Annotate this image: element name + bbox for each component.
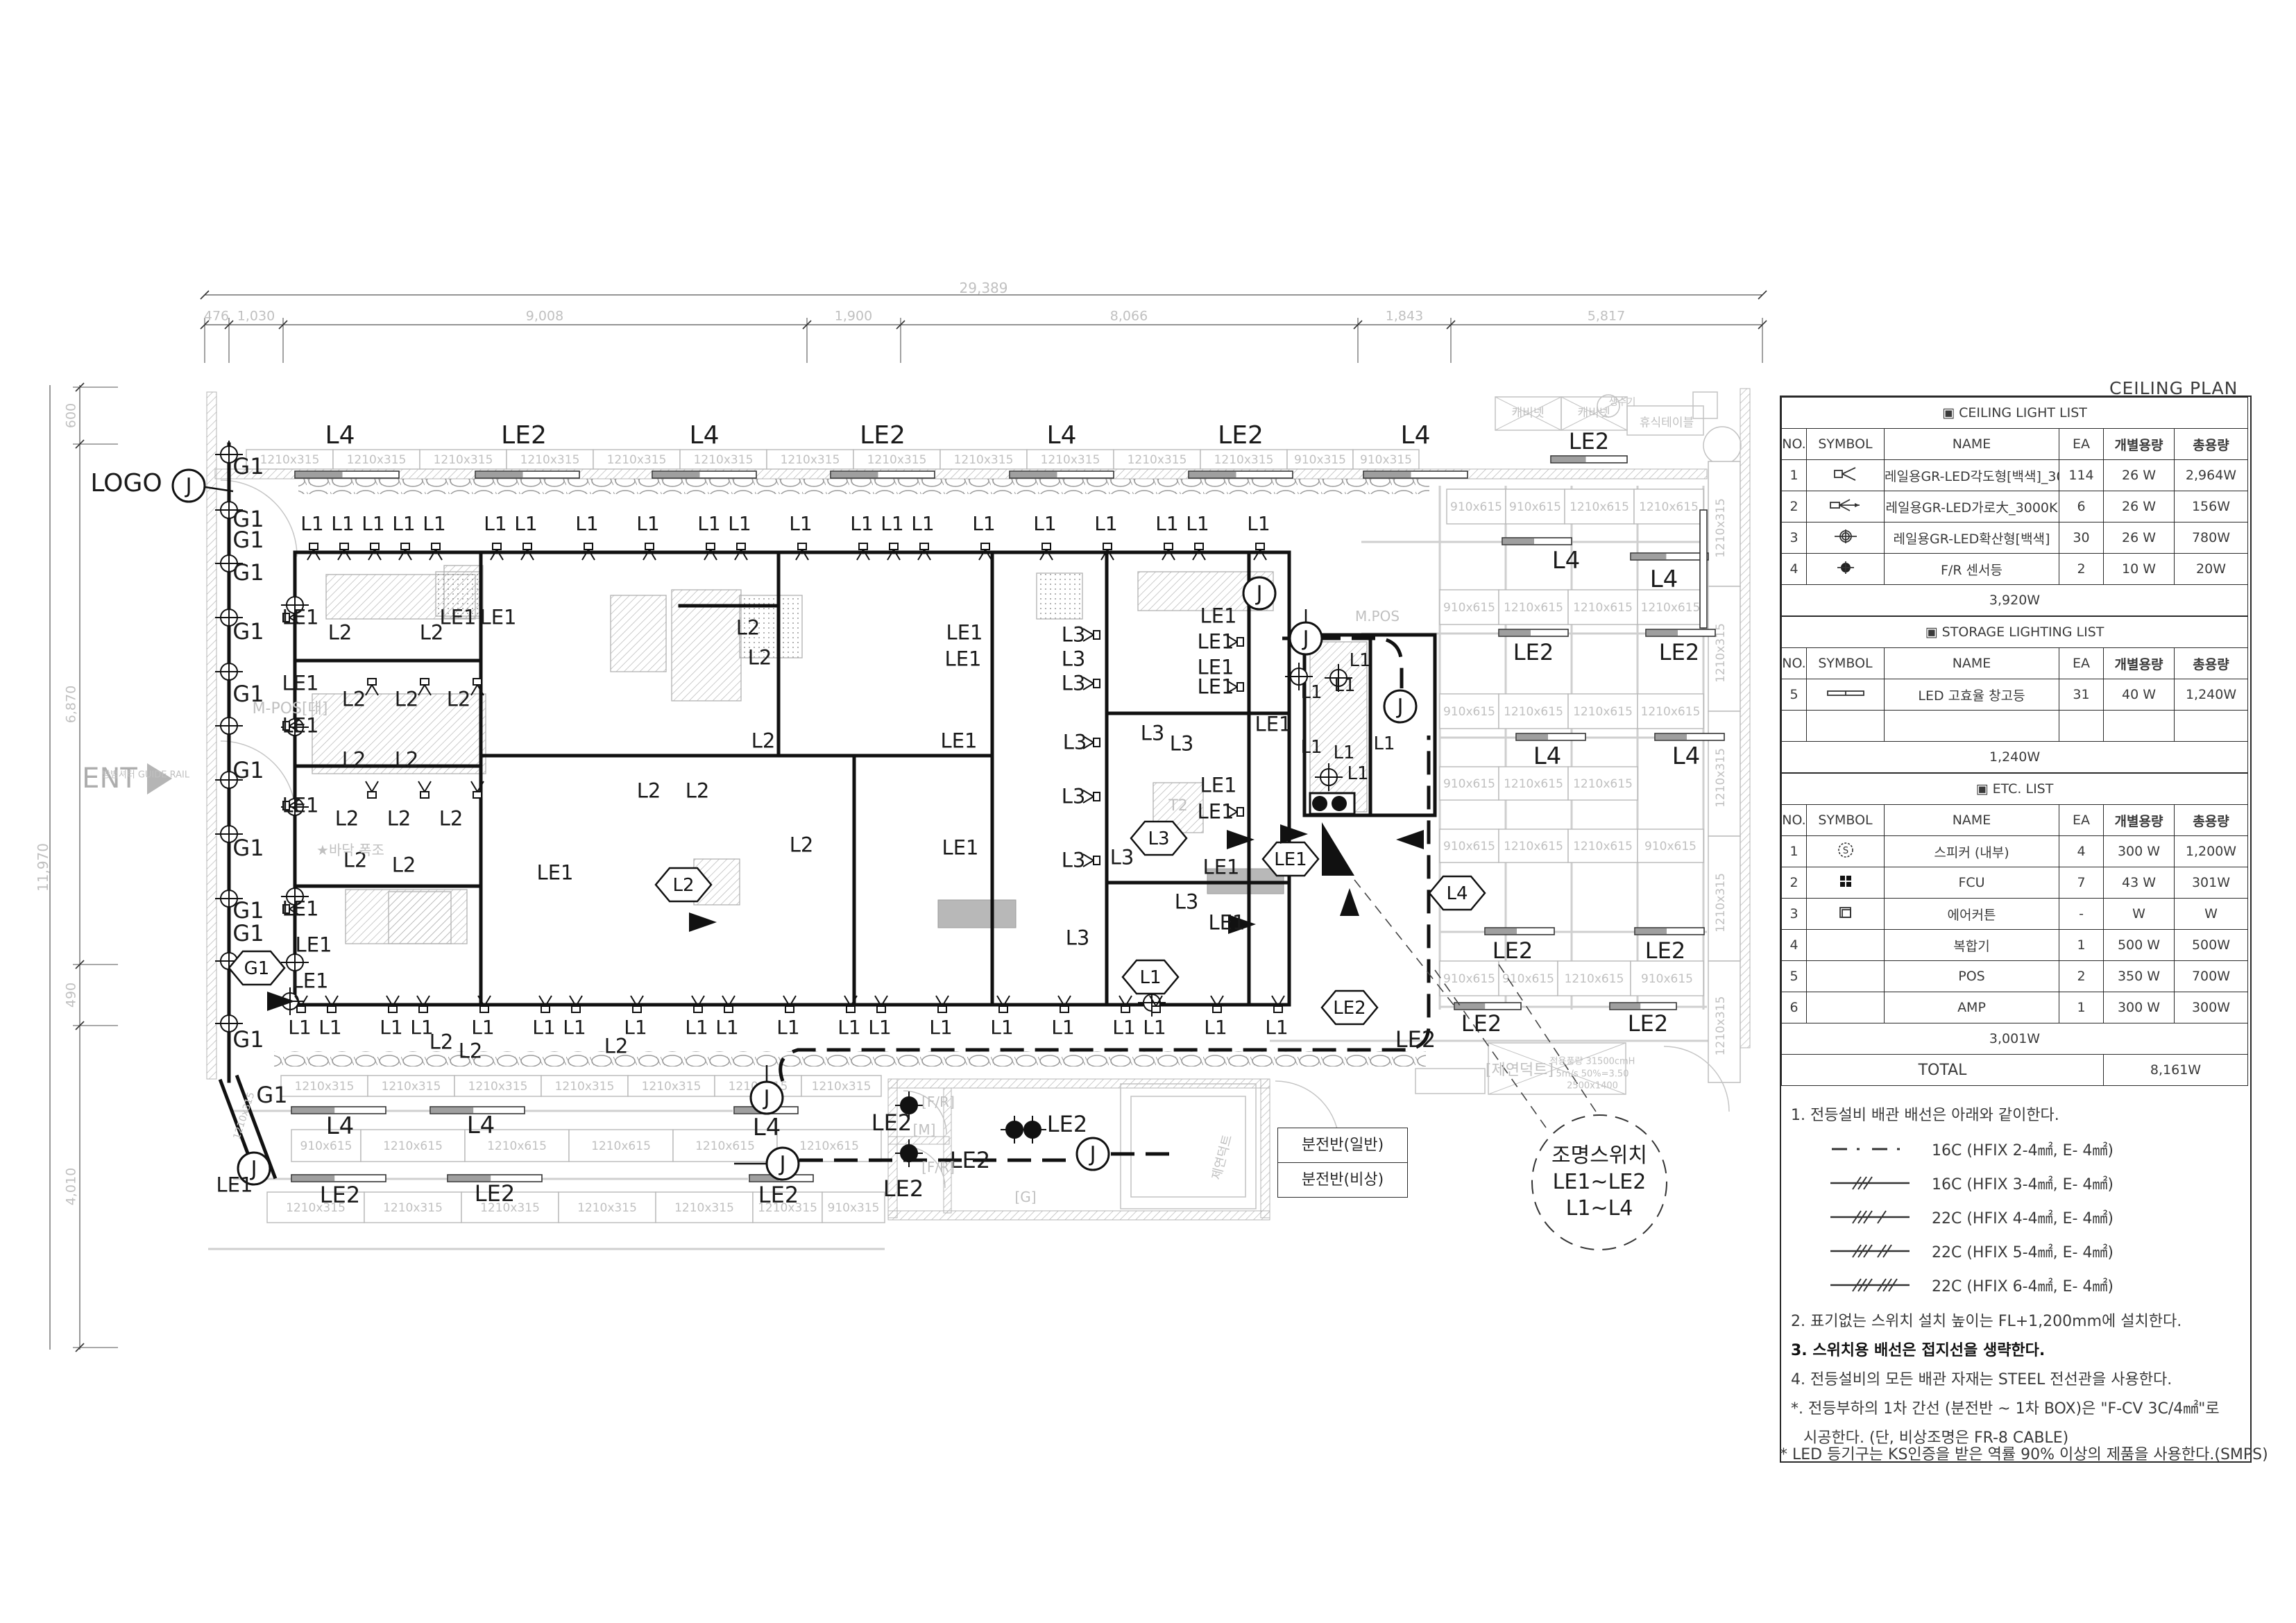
wall-hatch — [1261, 1079, 1270, 1218]
plan-label: L2 — [342, 690, 366, 710]
shelf-size-label: 1210x615 — [591, 1139, 651, 1153]
plan-label: G1 — [232, 455, 264, 477]
plan-label: LE2 — [883, 1178, 924, 1200]
panel-label: 분전반(비상) — [1278, 1163, 1407, 1197]
circuit-label-l1: L1 — [532, 1018, 555, 1037]
table-row: 5POS2350 W700W — [1782, 961, 2248, 992]
table-row: 3에어커튼-WW — [1782, 899, 2248, 930]
table-header: NO. — [1782, 648, 1807, 679]
plan-label: LE2 — [475, 1182, 515, 1205]
junction-box: J — [751, 1082, 783, 1114]
plan-label: LE1 — [282, 674, 319, 694]
plan-label: L2 — [751, 731, 776, 751]
circuit-label-l1: L1 — [331, 514, 354, 534]
table-header: 개별용량 — [2104, 429, 2175, 460]
circuit-label-l1: L1 — [380, 1018, 402, 1037]
dim-value: 9,008 — [526, 310, 563, 323]
shelf-size-label: 1210x315 — [468, 1080, 528, 1094]
plan-label: LE2 — [1569, 430, 1609, 452]
plan-label: L4 — [326, 1114, 355, 1138]
dim-value: 1,030 — [237, 310, 275, 323]
plan-label: G1 — [232, 529, 264, 551]
shelf-size-label: 1210x615 — [1573, 840, 1633, 853]
rail-spot-icon — [1083, 629, 1100, 641]
plan-label: LE2 — [1513, 641, 1554, 663]
table-header: SYMBOL — [1807, 648, 1885, 679]
shelf-size-label: 1210x315 — [520, 453, 580, 467]
table-row: 4복합기1500 W500W — [1782, 930, 2248, 961]
circuit-label-l1: L1 — [1204, 1018, 1227, 1037]
light-list-panel: ▣ CEILING LIGHT LISTNO.SYMBOLNAMEEA개별용량총… — [1780, 396, 2252, 1463]
plan-label: T2 — [1168, 799, 1187, 814]
plan-label: LE2 — [950, 1149, 990, 1171]
plan-label: M-POS[대] — [253, 702, 328, 717]
svg-text:L1: L1 — [1139, 967, 1161, 988]
dim-value: 600 — [65, 403, 78, 428]
note-1: 1. 전등설비 배관 배선은 아래와 같이한다. — [1791, 1103, 2245, 1125]
shelf-size-label: 1210x615 — [1573, 705, 1633, 719]
circuit-label-l1: L1 — [471, 1018, 494, 1037]
furniture — [389, 892, 451, 944]
note-2: 2. 표기없는 스위치 설치 높이는 FL+1,200mm에 설치한다. — [1791, 1309, 2245, 1331]
circuit-label-l1: L1 — [514, 514, 537, 534]
legend-text: 22C (HFIX 5-4㎟, E- 4㎟) — [1932, 1240, 2114, 1262]
fixture-outline — [1693, 392, 1717, 418]
shelf-size-label: 1210x315 — [1128, 453, 1187, 467]
plan-label: LE1 — [1203, 858, 1240, 878]
plan-label: 생수기 — [1609, 398, 1636, 407]
circuit-label-l1: L1 — [1265, 1018, 1288, 1037]
shelf-size-label: 1210x615 — [799, 1139, 859, 1153]
table-header: NAME — [1885, 648, 2059, 679]
shelf-size-label: 910x615 — [1443, 972, 1495, 986]
plan-label: 5m/s 50%=3.50 — [1556, 1070, 1629, 1079]
table-header: NO. — [1782, 429, 1807, 460]
plan-label: LE1 — [216, 1175, 253, 1196]
plan-label: LE1 — [1200, 776, 1237, 796]
shelf-size-label: 1210x615 — [1639, 500, 1699, 514]
svg-text:L2: L2 — [672, 875, 694, 896]
plan-label: LE2 — [1461, 1012, 1502, 1035]
plan-label: LE1 — [1198, 677, 1234, 697]
circuit-label-l1: L1 — [868, 1018, 891, 1037]
circuit-label-l1: L1 — [1033, 514, 1056, 534]
table-row — [1782, 711, 2248, 742]
garland-trim — [298, 479, 1429, 494]
plan-label: G1 — [256, 1084, 287, 1106]
plan-label: LE1 — [946, 623, 983, 643]
dim-value: 8,066 — [1110, 310, 1148, 323]
plan-label: LE2 — [758, 1184, 799, 1206]
dim-value: 4,010 — [65, 1168, 78, 1205]
plan-label: LE1 — [537, 863, 574, 883]
rail-spot-icon — [1083, 854, 1100, 867]
table-row: 2FCU743 W301W — [1782, 867, 2248, 899]
legend-row: 22C (HFIX 5-4㎟, E- 4㎟) — [1791, 1234, 2245, 1268]
led-footnote: * LED 등기구는 KS인증을 받은 역률 90% 이상의 제품을 사용한다.… — [1780, 1442, 2268, 1464]
dim-value: 1,900 — [835, 310, 872, 323]
legend-text: 16C (HFIX 2-4㎟, E- 4㎟) — [1932, 1138, 2114, 1160]
distribution-panel-box: 분전반(일반)분전반(비상) — [1277, 1128, 1408, 1198]
shelf-size-label: 910x315 — [828, 1201, 880, 1215]
plan-label: L1 — [1373, 735, 1395, 753]
table-header: 총용량 — [2175, 648, 2248, 679]
plan-label: L1 — [1300, 738, 1322, 756]
table-row: 3레일용GR-LED확산형[백색]3026 W780W — [1782, 522, 2248, 554]
plan-label: L2 — [342, 750, 366, 770]
plan-label: LE1 — [296, 935, 332, 955]
black-wedge — [1322, 822, 1354, 876]
plan-label: L2 — [420, 623, 444, 643]
table-title: ▣ ETC. LIST — [1782, 774, 2248, 805]
plan-label: L2 — [395, 750, 419, 770]
legend-text: 16C (HFIX 3-4㎟, E- 4㎟) — [1932, 1172, 2114, 1194]
direction-arrow — [1340, 888, 1359, 916]
shelf-size-label: 1210x315 — [954, 453, 1014, 467]
light-list-table: ▣ STORAGE LIGHTING LISTNO.SYMBOLNAMEEA개별… — [1781, 616, 2248, 773]
shelf-size-label: 910x615 — [300, 1139, 352, 1153]
circuit-label-l1: L1 — [423, 514, 445, 534]
dim-value: 6,870 — [65, 686, 78, 723]
shelf-size-label: 1210x315 — [1714, 996, 1728, 1056]
plan-label: L4 — [325, 423, 355, 448]
plan-label: 2500x1400 — [1567, 1082, 1618, 1091]
circuit-label-l1: L1 — [911, 514, 934, 534]
circuit-label-l1: L1 — [728, 514, 751, 534]
circuit-label-l1: L1 — [624, 1018, 647, 1037]
plan-label: LE2 — [1047, 1113, 1087, 1135]
legend-text: 22C (HFIX 6-4㎟, E- 4㎟) — [1932, 1274, 2114, 1296]
plan-label: L1 — [1300, 683, 1322, 702]
plan-label: L2 — [439, 809, 464, 829]
table-row: 1S스피커 (내부)4300 W1,200W — [1782, 836, 2248, 867]
plan-label: L2 — [459, 1042, 483, 1062]
plan-label: L2 — [392, 856, 416, 876]
plan-label: L3 — [1066, 928, 1090, 949]
plan-label: L3 — [1062, 649, 1086, 670]
shelf-size-label: 1210x315 — [674, 1201, 734, 1215]
plan-label: LE2 — [1493, 940, 1533, 962]
shelf-size-label: 1210x315 — [1714, 623, 1728, 683]
plan-label: L3 — [1063, 733, 1087, 753]
table-header: 개별용량 — [2104, 648, 2175, 679]
circuit-label-l1: L1 — [575, 514, 598, 534]
table-row: 2레일용GR-LED가로大_3000K626 W156W — [1782, 491, 2248, 522]
table-subtotal: 3,001W — [1782, 1023, 2248, 1055]
plan-label: LE1 — [941, 731, 978, 751]
circuit-label-l1: L1 — [410, 1018, 433, 1037]
table-header: SYMBOL — [1807, 429, 1885, 460]
plan-label: L4 — [690, 423, 720, 448]
plan-label: L2 — [748, 648, 772, 668]
plan-label: LE1 — [1255, 715, 1292, 735]
storage-light-bar — [1700, 510, 1707, 628]
circuit-label-l1: L1 — [1186, 514, 1209, 534]
plan-label: G1 — [232, 759, 264, 781]
circuit-label-l1: L1 — [362, 514, 384, 534]
switch-note-text: LE1~LE2 — [1553, 1172, 1647, 1193]
plan-label: LE1 — [480, 608, 517, 628]
shelf-size-label: 1210x315 — [347, 453, 407, 467]
svg-text:J: J — [1302, 627, 1309, 651]
shelf-size-label: 1210x315 — [295, 1080, 355, 1094]
light-list-table: ▣ CEILING LIGHT LISTNO.SYMBOLNAMEEA개별용량총… — [1781, 397, 2248, 616]
shelf-size-label: 910x615 — [1443, 777, 1495, 791]
plan-label: L2 — [447, 690, 471, 710]
junction-box: J — [1077, 1138, 1109, 1170]
plan-label: LE1 — [282, 608, 319, 628]
svg-text:L4: L4 — [1446, 883, 1468, 904]
table-row: 5LED 고효율 창고등3140 W1,240W — [1782, 679, 2248, 711]
dim-value: 490 — [65, 983, 78, 1008]
plan-label: LE1 — [282, 796, 319, 816]
plan-label: L3 — [1170, 734, 1194, 754]
switch-note-text: 조명스위치 — [1551, 1146, 1647, 1166]
table-header: SYMBOL — [1807, 805, 1885, 836]
shelf-size-label: 1210x615 — [1573, 601, 1633, 615]
shelf-size-label: 1210x315 — [577, 1201, 637, 1215]
plan-label: L2 — [604, 1037, 629, 1057]
circuit-badge: LE2 — [1322, 991, 1377, 1024]
plan-label: L2 — [736, 618, 760, 638]
plan-label: LE1 — [942, 838, 979, 858]
plan-label: LE2 — [501, 423, 547, 448]
shelf-size-label: 910x615 — [1443, 840, 1495, 853]
dim-value: 5,817 — [1588, 310, 1625, 323]
circuit-label-l1: L1 — [697, 514, 720, 534]
legend-row: 16C (HFIX 3-4㎟, E- 4㎟) — [1791, 1166, 2245, 1200]
shelf-size-label: 1210x615 — [1565, 972, 1624, 986]
plan-label: 방범셔터 GUIDE RAIL — [102, 771, 189, 780]
plan-label: L1 — [1334, 677, 1355, 695]
plan-label: LE1 — [1198, 802, 1234, 822]
plan-label: L4 — [1650, 568, 1678, 591]
plan-label: L4 — [1552, 549, 1581, 572]
shelf-size-label: 1210x615 — [383, 1139, 443, 1153]
table-header: EA — [2059, 805, 2104, 836]
table-subtotal: 3,920W — [1782, 585, 2248, 616]
svg-text:J: J — [779, 1152, 786, 1176]
legend-row: 22C (HFIX 6-4㎟, E- 4㎟) — [1791, 1268, 2245, 1302]
plan-label: [G] — [1014, 1190, 1036, 1204]
junction-box: J — [1384, 690, 1416, 722]
table-subtotal: 1,240W — [1782, 742, 2248, 773]
junction-box: J — [1243, 577, 1275, 609]
shelf-size-label: 910x615 — [1644, 840, 1697, 853]
table-header: 개별용량 — [2104, 805, 2175, 836]
plan-label: LE2 — [1395, 1028, 1436, 1051]
panel-label: 분전반(일반) — [1278, 1128, 1407, 1163]
shelf-size-label: 1210x615 — [1570, 500, 1629, 514]
svg-text:G1: G1 — [244, 958, 270, 979]
switch-note-text: L1~L4 — [1566, 1198, 1633, 1219]
plan-label: [M] — [913, 1123, 936, 1137]
shelf-size-label: 1210x315 — [382, 1080, 441, 1094]
rail-spot-icon — [418, 781, 431, 798]
plan-label: L2 — [328, 623, 352, 643]
plan-label: LE1 — [945, 649, 982, 670]
plan-label: L4 — [1047, 423, 1077, 448]
plan-label: G1 — [232, 620, 264, 643]
table-row: 6AMP1300 W300W — [1782, 992, 2248, 1023]
shelf-size-label: 910x615 — [1450, 500, 1502, 514]
direction-arrow — [1280, 824, 1308, 844]
shelf-size-label: 1210x615 — [1504, 840, 1563, 853]
circuit-label-l1: L1 — [685, 1018, 708, 1037]
junction-box: J — [1290, 622, 1322, 654]
plan-label: L4 — [1533, 745, 1562, 768]
svg-text:J: J — [185, 474, 192, 498]
circuit-label-l1: L1 — [1247, 514, 1270, 534]
shelf-size-label: 1210x315 — [812, 1080, 871, 1094]
svg-text:L3: L3 — [1148, 829, 1169, 849]
fixture-outline — [1415, 1069, 1485, 1094]
circuit-label-l1: L1 — [1155, 514, 1178, 534]
rail-spot-icon — [418, 679, 431, 695]
plan-label: ★바닥 폭조 — [316, 843, 384, 857]
circuit-label-l1: L1 — [929, 1018, 952, 1037]
circuit-label-l1: L1 — [1051, 1018, 1074, 1037]
light-list-table: ▣ ETC. LISTNO.SYMBOLNAMEEA개별용량총용량1S스피커 (… — [1781, 773, 2248, 1086]
plan-label: 캐비넷 — [1512, 408, 1545, 420]
shelf-size-label: 1210x315 — [1714, 873, 1728, 933]
plan-label: LE2 — [320, 1184, 360, 1206]
dim-value: 29,389 — [960, 281, 1008, 295]
shelf-size-label: 910x615 — [1509, 500, 1561, 514]
direction-arrow — [1396, 830, 1424, 849]
plan-label: L3 — [1175, 892, 1199, 912]
plan-label: G1 — [232, 561, 264, 584]
circuit-label-l1: L1 — [789, 514, 812, 534]
rail-spot-icon — [1083, 790, 1100, 803]
plan-label: L1 — [1333, 744, 1354, 762]
wall-hatch — [215, 469, 1707, 479]
shelf-size-label: 1210x315 — [555, 1080, 615, 1094]
shelf-size-label: 1210x315 — [1714, 498, 1728, 558]
notes-block: 1. 전등설비 배관 배선은 아래와 같이한다.16C (HFIX 2-4㎟, … — [1781, 1086, 2250, 1461]
plan-label: LE1 — [1198, 632, 1234, 652]
note-3: 3. 스위치용 배선은 접지선을 생략한다. — [1791, 1338, 2245, 1360]
table-row: 4F/R 센서등210 W20W — [1782, 554, 2248, 585]
plan-label: LE2 — [1218, 423, 1264, 448]
shelf-size-label: 910x615 — [1502, 972, 1554, 986]
circuit-label-l1: L1 — [715, 1018, 738, 1037]
plan-label: LE1 — [1209, 913, 1245, 933]
plan-label: L2 — [387, 809, 411, 829]
shelf-size-label: 910x615 — [1641, 972, 1693, 986]
plan-label: LE1 — [1200, 606, 1237, 627]
plan-label: LE2 — [860, 423, 905, 448]
plan-label: [F/R] — [921, 1160, 955, 1174]
rail-spot-icon — [1083, 677, 1100, 690]
sensor-light-icon — [1019, 1116, 1046, 1144]
plan-label: LOGO — [90, 471, 162, 496]
plan-label: M.POS — [1355, 609, 1400, 623]
table-header: 총용량 — [2175, 429, 2248, 460]
plan-label: L3 — [1062, 787, 1086, 807]
shelf-size-label: 1210x315 — [1214, 453, 1274, 467]
circuit-badge: G1 — [229, 951, 284, 985]
plan-label: L2 — [790, 835, 814, 856]
shelf-size-label: 1210x315 — [642, 1080, 701, 1094]
shelf-size-label: 1210x315 — [1041, 453, 1100, 467]
shelf-size-label: 1210x615 — [1641, 601, 1701, 615]
svg-text:J: J — [1396, 695, 1404, 719]
plan-label: LE1 — [282, 716, 319, 736]
legend-row: 22C (HFIX 4-4㎟, E- 4㎟) — [1791, 1200, 2245, 1234]
wall-hatch — [207, 392, 216, 1079]
gray-shelf — [938, 900, 1016, 928]
shelf-size-label: 1210x315 — [434, 453, 493, 467]
table-header: NAME — [1885, 429, 2059, 460]
plan-label: L4 — [1401, 423, 1431, 448]
furniture — [611, 595, 666, 672]
plan-label: G1 — [232, 899, 264, 921]
plan-label: L3 — [1062, 851, 1086, 871]
shelf-size-label: 1210x615 — [1504, 601, 1563, 615]
plan-label: [제연덕트] — [1486, 1063, 1554, 1078]
circuit-label-l1: L1 — [1094, 514, 1117, 534]
shelf-size-label: 910x615 — [1443, 705, 1495, 719]
plan-label: L3 — [1110, 848, 1134, 868]
circuit-label-l1: L1 — [837, 1018, 860, 1037]
svg-text:LE1: LE1 — [1274, 849, 1307, 870]
dim-value: 11,970 — [36, 843, 50, 892]
shelf-size-label: 910x615 — [1443, 601, 1495, 615]
total-label: TOTAL — [1782, 1055, 2104, 1086]
svg-text:J: J — [1089, 1142, 1096, 1166]
table-header: EA — [2059, 648, 2104, 679]
plan-label: L4 — [1672, 745, 1701, 768]
plan-label: [F/R] — [921, 1095, 955, 1109]
circuit-label-l1: L1 — [1143, 1018, 1166, 1037]
note-5a: *. 전등부하의 1차 간선 (분전반 ~ 1차 BOX)은 "F-CV 3C/… — [1791, 1396, 2245, 1418]
plan-label: LE1 — [282, 899, 319, 919]
plan-label: LE1 — [440, 608, 477, 628]
plan-label: 적용풍량 31500cmH — [1550, 1057, 1635, 1067]
shelf-size-label: 1210x615 — [1573, 777, 1633, 791]
ceiling-plan-sheet: 1210x3151210x3151210x3151210x3151210x315… — [0, 0, 2296, 1623]
plan-label: 캐비넷 — [1578, 408, 1610, 420]
circuit-badge: L4 — [1429, 876, 1485, 910]
shelf-size-label: 1210x315 — [694, 453, 754, 467]
furniture-dotted — [1037, 573, 1082, 619]
shelf-size-label: 1210x615 — [1504, 705, 1563, 719]
circuit-label-l1: L1 — [300, 514, 323, 534]
plan-label: L1 — [1347, 765, 1368, 783]
shelf-size-label: 1210x315 — [781, 453, 840, 467]
shelf-size-label: 1210x615 — [487, 1139, 547, 1153]
circuit-label-l1: L1 — [318, 1018, 341, 1037]
shelf-size-label: 1210x315 — [1714, 748, 1728, 808]
circuit-label-l1: L1 — [972, 514, 995, 534]
plan-label: LE2 — [1659, 641, 1699, 663]
circuit-label-l1: L1 — [881, 514, 903, 534]
svg-text:J: J — [763, 1086, 770, 1110]
junction-box: J — [173, 470, 205, 502]
plan-label: 휴식테이블 — [1640, 418, 1694, 430]
circuit-label-l1: L1 — [776, 1018, 799, 1037]
total-value: 8,161W — [2104, 1055, 2248, 1086]
table-header: EA — [2059, 429, 2104, 460]
plan-label: L4 — [753, 1116, 781, 1139]
circuit-label-l1: L1 — [1112, 1018, 1135, 1037]
plan-label: L3 — [1062, 625, 1086, 645]
legend-text: 22C (HFIX 4-4㎟, E- 4㎟) — [1932, 1206, 2114, 1228]
table-row: 1레일용GR-LED각도형[백색]_3000K11426 W2,964W — [1782, 460, 2248, 491]
plan-label: G1 — [232, 922, 264, 944]
table-title: ▣ STORAGE LIGHTING LIST — [1782, 617, 2248, 648]
